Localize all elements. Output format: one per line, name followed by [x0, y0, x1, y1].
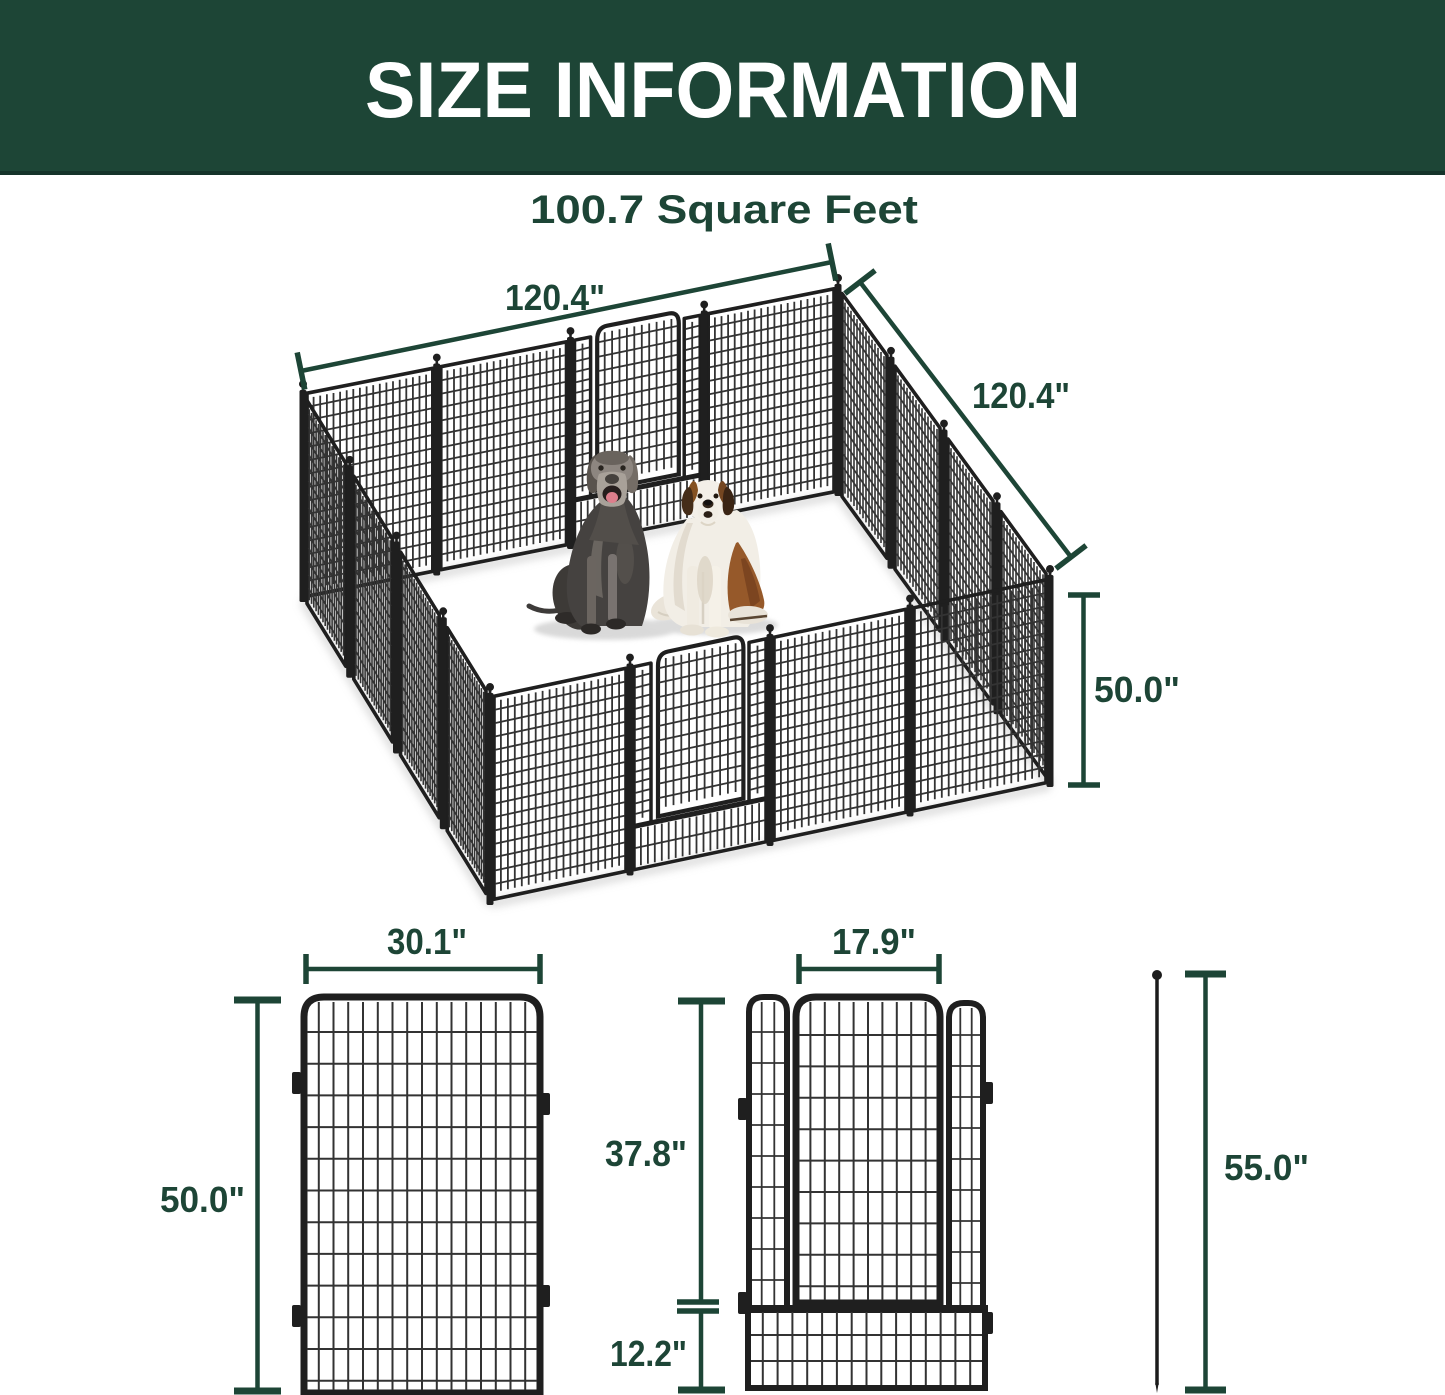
- svg-text:12.2": 12.2": [610, 1333, 687, 1374]
- svg-text:30.1": 30.1": [387, 921, 467, 962]
- svg-text:120.4": 120.4": [972, 375, 1070, 416]
- svg-text:100.7 Square Feet: 100.7 Square Feet: [530, 188, 918, 232]
- svg-text:17.9": 17.9": [832, 921, 916, 962]
- svg-text:37.8": 37.8": [605, 1133, 687, 1174]
- svg-text:SIZE INFORMATION: SIZE INFORMATION: [365, 45, 1081, 134]
- svg-text:55.0": 55.0": [1224, 1147, 1309, 1188]
- svg-text:120.4": 120.4": [505, 277, 605, 318]
- svg-text:50.0": 50.0": [160, 1179, 245, 1220]
- svg-text:50.0": 50.0": [1094, 669, 1180, 710]
